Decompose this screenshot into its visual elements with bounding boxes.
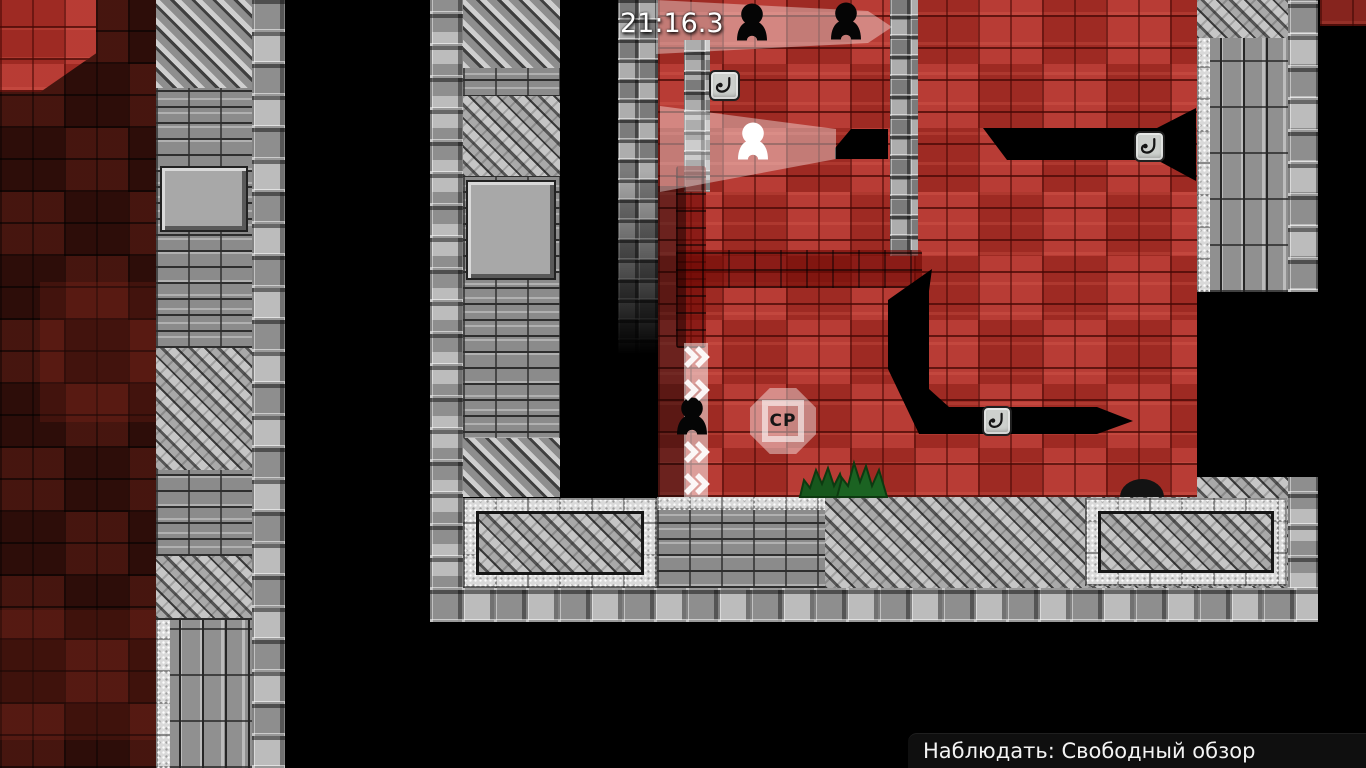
tunnel-top-left [835,129,888,159]
race-timer: 21:16.3 [620,8,740,39]
grass-clump [837,463,887,497]
hook-icon [709,70,740,101]
dark-mound [1120,479,1164,497]
hook-icon [982,406,1012,436]
map-overlay [0,0,1366,768]
hook-icon [1134,131,1165,162]
checkpoint-badge: CP [750,388,816,454]
game-viewport[interactable]: CP 21:16.3 Наблюдать: Свободный обзор [0,0,1366,768]
spectate-mode-label: Наблюдать: Свободный обзор [923,734,1255,768]
checkpoint-label: CP [750,388,816,454]
spectate-bar: Наблюдать: Свободный обзор [908,733,1366,768]
